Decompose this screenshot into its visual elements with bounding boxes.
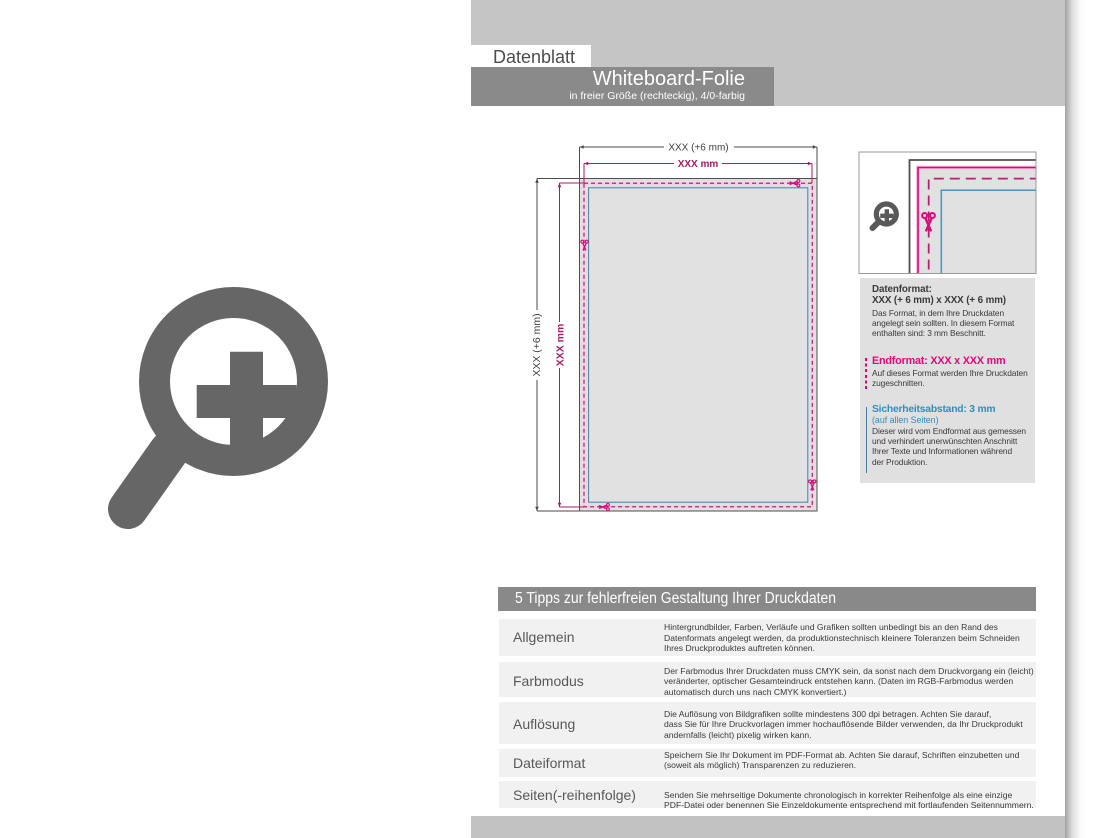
svg-text:XXX (+6 mm): XXX (+6 mm) xyxy=(531,313,543,376)
svg-text:XXX (+6 mm): XXX (+6 mm) xyxy=(668,143,728,154)
svg-text:XXX mm: XXX mm xyxy=(555,324,567,367)
svg-text:XXX mm: XXX mm xyxy=(678,159,719,170)
